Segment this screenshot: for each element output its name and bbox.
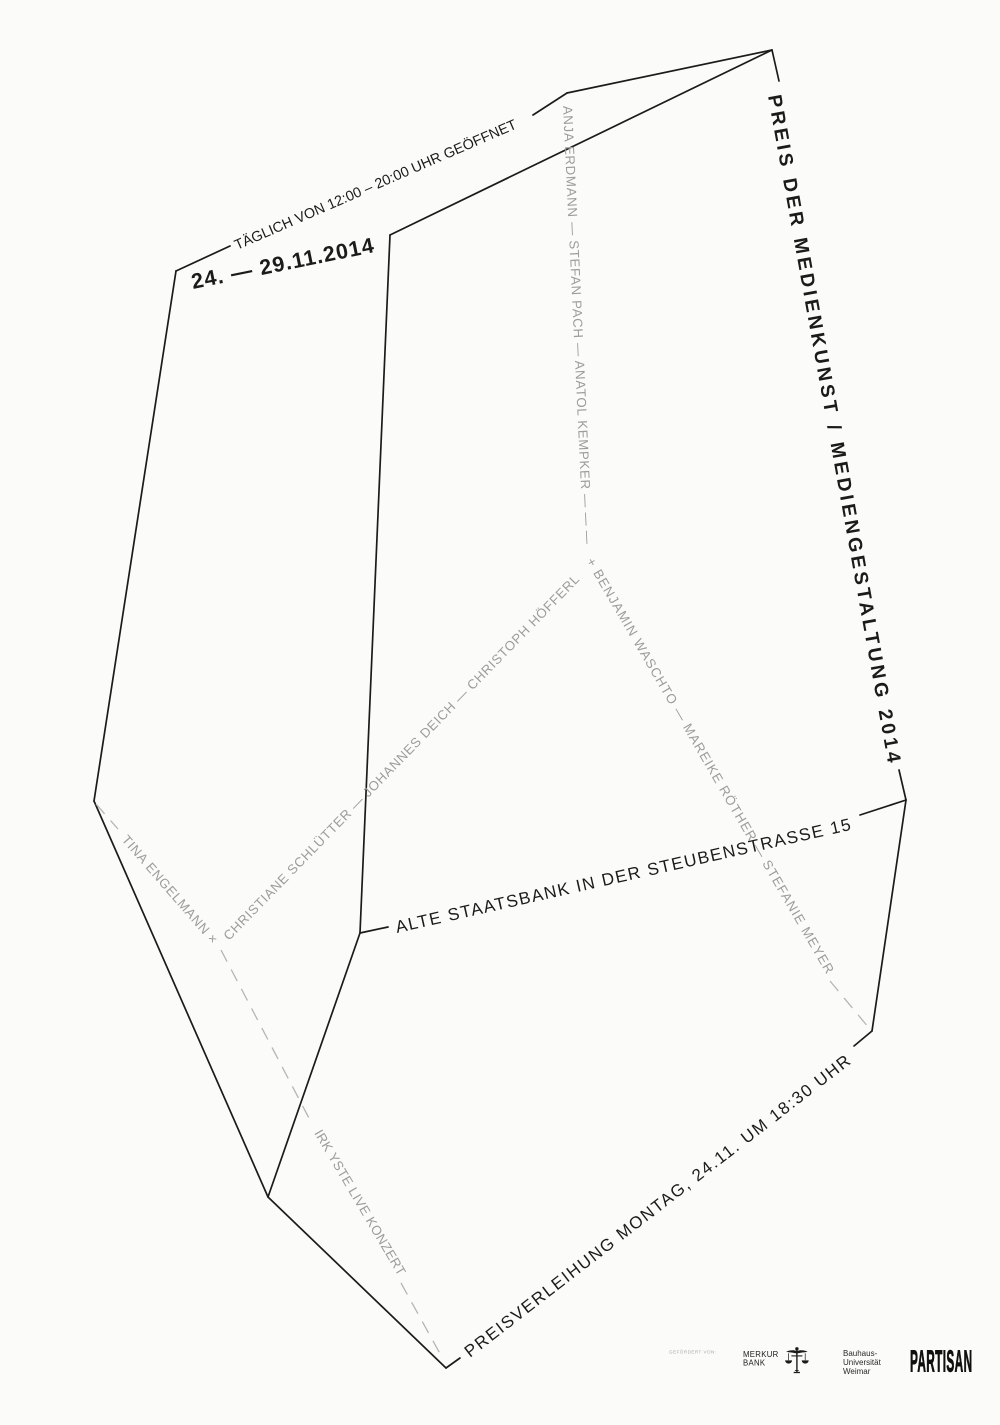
svg-text:TÄGLICH VON 12:00 – 20:00 UHR: TÄGLICH VON 12:00 – 20:00 UHR GEÖFFNET xyxy=(231,114,521,253)
svg-text:TINA ENGELMANN ×: TINA ENGELMANN × xyxy=(119,832,222,948)
svg-text:IRK YSTE LIVE KONZERT: IRK YSTE LIVE KONZERT xyxy=(311,1127,409,1279)
svg-text:PREIS DER MEDIENKUNST / MEDIEN: PREIS DER MEDIENKUNST / MEDIENGESTALTUNG… xyxy=(763,93,904,766)
svg-text:ALTE STAATSBANK IN DER STEUBEN: ALTE STAATSBANK IN DER STEUBENSTRASSE 15 xyxy=(393,814,854,937)
svg-text:PARTISAN: PARTISAN xyxy=(910,1344,972,1378)
svg-text:+ BENJAMIN WASCHTO — MAREIKE R: + BENJAMIN WASCHTO — MAREIKE RÖTHER — ST… xyxy=(583,555,837,977)
svg-text:Bauhaus-: Bauhaus- xyxy=(843,1349,878,1358)
svg-text:GEFÖRDERT VON:: GEFÖRDERT VON: xyxy=(669,1349,716,1355)
svg-text:PREISVERLEIHUNG MONTAG, 24.11.: PREISVERLEIHUNG MONTAG, 24.11. UM 18:30 … xyxy=(461,1050,856,1361)
svg-text:24. — 29.11.2014: 24. — 29.11.2014 xyxy=(189,233,378,294)
svg-text:ANJA ERDMANN — STEFAN PACH — A: ANJA ERDMANN — STEFAN PACH — ANATOL KEMP… xyxy=(560,105,596,545)
svg-text:Universität: Universität xyxy=(843,1358,882,1367)
svg-text:Weimar: Weimar xyxy=(843,1367,871,1376)
svg-text:BANK: BANK xyxy=(743,1359,766,1368)
